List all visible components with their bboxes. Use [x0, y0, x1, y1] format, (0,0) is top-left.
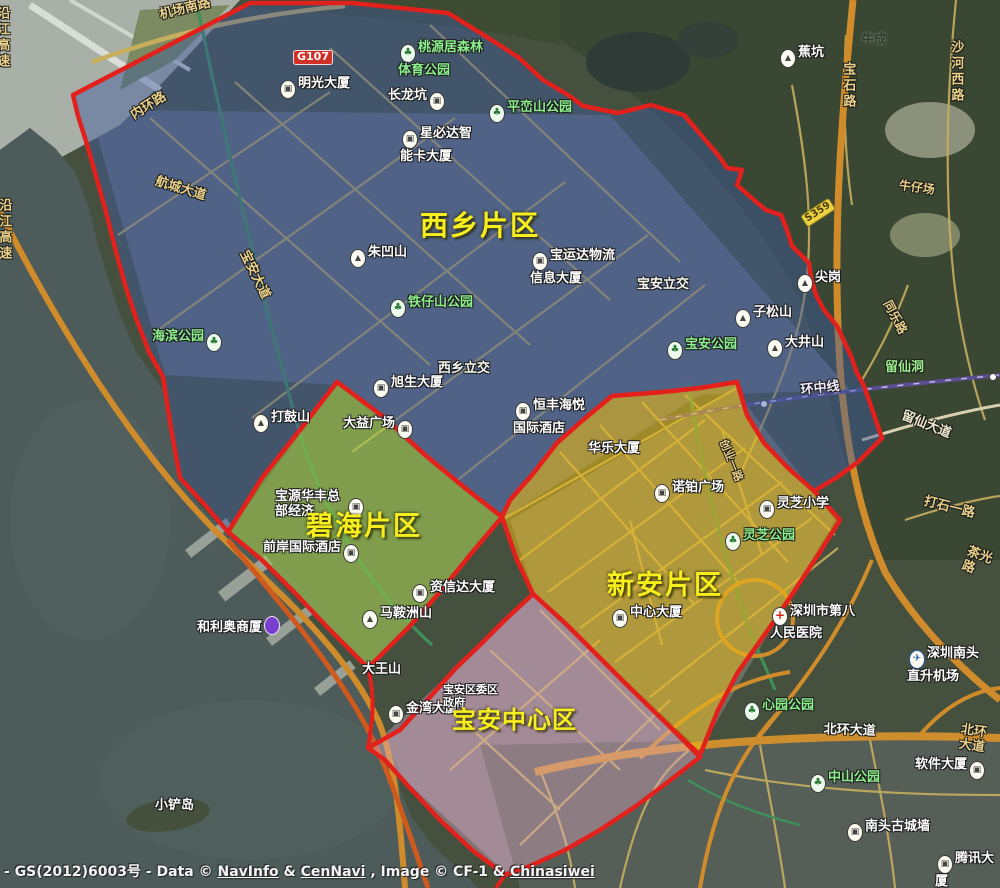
badge-s359: S359	[800, 197, 836, 227]
label-dajingshan: 大井山	[765, 335, 824, 358]
road-liuxian-dadao: 留仙大道	[899, 408, 953, 442]
building-icon	[612, 609, 628, 628]
label-no8-peoples-hospital: 深圳市第八 人民医院	[770, 604, 855, 641]
label-jiangang: 尖岗	[795, 270, 841, 293]
label-xinyuan-park: 心园公园	[742, 698, 814, 721]
purple-icon	[264, 616, 280, 635]
mountain-icon	[350, 249, 366, 268]
label-maanzhoushan: 马鞍洲山	[360, 606, 432, 629]
mountain-icon	[253, 414, 269, 433]
road-hangcheng-dadao: 航城大道	[154, 174, 208, 204]
attribution-segment: , Image © CF-1 &	[365, 864, 510, 880]
building-icon	[373, 379, 389, 398]
label-nuobo-guangchang: 诺铂广场	[652, 480, 724, 503]
label-niuzaichang: 牛仔场	[898, 178, 936, 197]
badge-g107: G107	[293, 50, 333, 65]
label-dayi-guangchang: 大益广场	[343, 416, 415, 439]
road-baoan-dadao: 宝安大道	[236, 248, 273, 301]
label-nantou-heliport: 深圳南头 直升机场	[907, 646, 979, 684]
label-mingguang-dasha: 明光大厦	[278, 76, 350, 99]
road-neihuanlu: 内环路	[128, 89, 169, 123]
label-dagushan: 打鼓山	[251, 410, 310, 433]
road-beihuan-dadao: 北环大道	[823, 722, 876, 739]
map-labels-layer: 明光大厦长龙坑蕉坑牛成星必达智 能卡大厦朱凹山宝运达物流 信息大厦宝安立交尖岗子…	[0, 0, 1000, 888]
building-icon	[429, 92, 445, 111]
park-icon	[810, 774, 826, 793]
label-xiaochandao: 小铲岛	[155, 798, 194, 813]
label-ruanjian-dasha: 软件大厦	[915, 757, 987, 780]
park-icon	[725, 532, 741, 551]
region-title-bihai: 碧海片区	[306, 504, 422, 543]
label-niucheng: 牛成	[862, 32, 886, 46]
road-jichang-nanlu: 机场南路	[158, 0, 212, 23]
label-tiezishan-park: 铁仔山公园	[388, 295, 473, 318]
building-icon	[397, 420, 413, 439]
label-zhongxin-dasha: 中心大厦	[610, 605, 682, 628]
label-baoan-park: 宝安公园	[665, 337, 737, 360]
label-jiaokeng: 蕉坑	[778, 45, 824, 68]
road-shahexilu: 沙河西路	[948, 40, 963, 104]
road-tonglelu: 同乐路	[881, 298, 910, 336]
label-zhongshan-park: 中山公园	[808, 770, 880, 793]
building-icon	[532, 252, 548, 271]
road-beihuan-dadao-2: 北环大道	[958, 722, 1000, 758]
building-icon	[654, 484, 670, 503]
label-xixiang-interchange: 西乡立交	[438, 361, 490, 376]
label-nantou-gucheng: 南头古城墙	[845, 819, 930, 842]
plane-icon	[909, 650, 925, 669]
park-icon	[667, 341, 683, 360]
label-tengxun-dasha: 腾讯大厦	[935, 851, 1000, 888]
road-dashi-yilu: 打石一路	[922, 494, 976, 521]
hospital-icon	[772, 607, 788, 626]
label-baoan-interchange: 宝安立交	[637, 277, 689, 292]
label-pingluanshan-park: 平峦山公园	[487, 100, 572, 123]
label-taoyuanju-sports-park: 桃源居森林 体育公园	[398, 40, 483, 78]
map-canvas[interactable]: 明光大厦长龙坑蕉坑牛成星必达智 能卡大厦朱凹山宝运达物流 信息大厦宝安立交尖岗子…	[0, 0, 1000, 888]
park-icon	[390, 299, 406, 318]
mountain-icon	[362, 610, 378, 629]
building-icon	[412, 584, 428, 603]
road-yanjiang-gaosu-2: 沿江高速	[0, 6, 9, 70]
label-zixinda-dasha: 资信达大厦	[410, 580, 495, 603]
building-icon	[402, 130, 418, 149]
map-attribution: - GS(2012)6003号 - Data © NavInfo & CenNa…	[4, 861, 595, 881]
region-title-xixiang: 西乡片区	[420, 204, 540, 244]
label-huale-dasha: 华乐大厦	[588, 441, 640, 456]
building-icon	[280, 80, 296, 99]
attribution-segment: NavInfo	[218, 864, 279, 880]
road-chaguanglu: 茶光路	[960, 544, 999, 583]
region-title-baoan-center: 宝安中心区	[452, 700, 577, 735]
park-icon	[489, 104, 505, 123]
park-icon	[400, 44, 416, 63]
building-icon	[515, 402, 531, 421]
label-zisongshan: 子松山	[733, 305, 792, 328]
road-chuangye-yilu: 创业一路	[716, 438, 745, 484]
label-heliao-shangsha: 和利奥商厦	[197, 616, 282, 635]
building-icon	[969, 761, 985, 780]
park-icon	[206, 333, 222, 352]
building-icon	[388, 705, 404, 724]
label-zhuaoshan: 朱凹山	[348, 245, 407, 268]
building-icon	[343, 544, 359, 563]
label-xingbida-tower: 星必达智 能卡大厦	[400, 126, 472, 164]
attribution-segment: Chinasiwei	[510, 864, 595, 880]
region-title-xinan: 新安片区	[607, 563, 723, 602]
road-baoshilu: 宝石路	[840, 62, 855, 110]
mountain-icon	[797, 274, 813, 293]
mountain-icon	[767, 339, 783, 358]
mountain-icon	[735, 309, 751, 328]
label-huanzhongxian-metro: 环中线	[800, 379, 840, 398]
label-liuxiandong: 留仙洞	[885, 360, 924, 375]
building-icon	[847, 823, 863, 842]
road-yanjiang-gaosu: 沿江高速	[0, 198, 11, 262]
attribution-segment: - GS(2012)6003号 - Data ©	[4, 864, 218, 880]
label-haibin-park: 海滨公园	[152, 329, 224, 352]
label-hengfeng-haiyue-hotel: 恒丰海悦 国际酒店	[513, 398, 585, 436]
label-baoyunda-logistics: 宝运达物流 信息大厦	[530, 248, 615, 286]
label-lingzhi-xiaoxue: 灵芝小学	[757, 496, 829, 519]
attribution-segment: CenNavi	[301, 864, 366, 880]
attribution-segment: &	[279, 864, 301, 880]
label-lingzhi-park: 灵芝公园	[723, 528, 795, 551]
label-xusheng-dasha: 旭生大厦	[371, 375, 443, 398]
mountain-icon	[780, 49, 796, 68]
building-icon	[937, 855, 953, 874]
label-changlongkeng: 长龙坑	[388, 88, 447, 111]
school-icon	[759, 500, 775, 519]
label-qianan-intl-hotel: 前岸国际酒店	[263, 540, 361, 563]
park-icon	[744, 702, 760, 721]
label-dawangshan: 大王山	[362, 662, 401, 677]
